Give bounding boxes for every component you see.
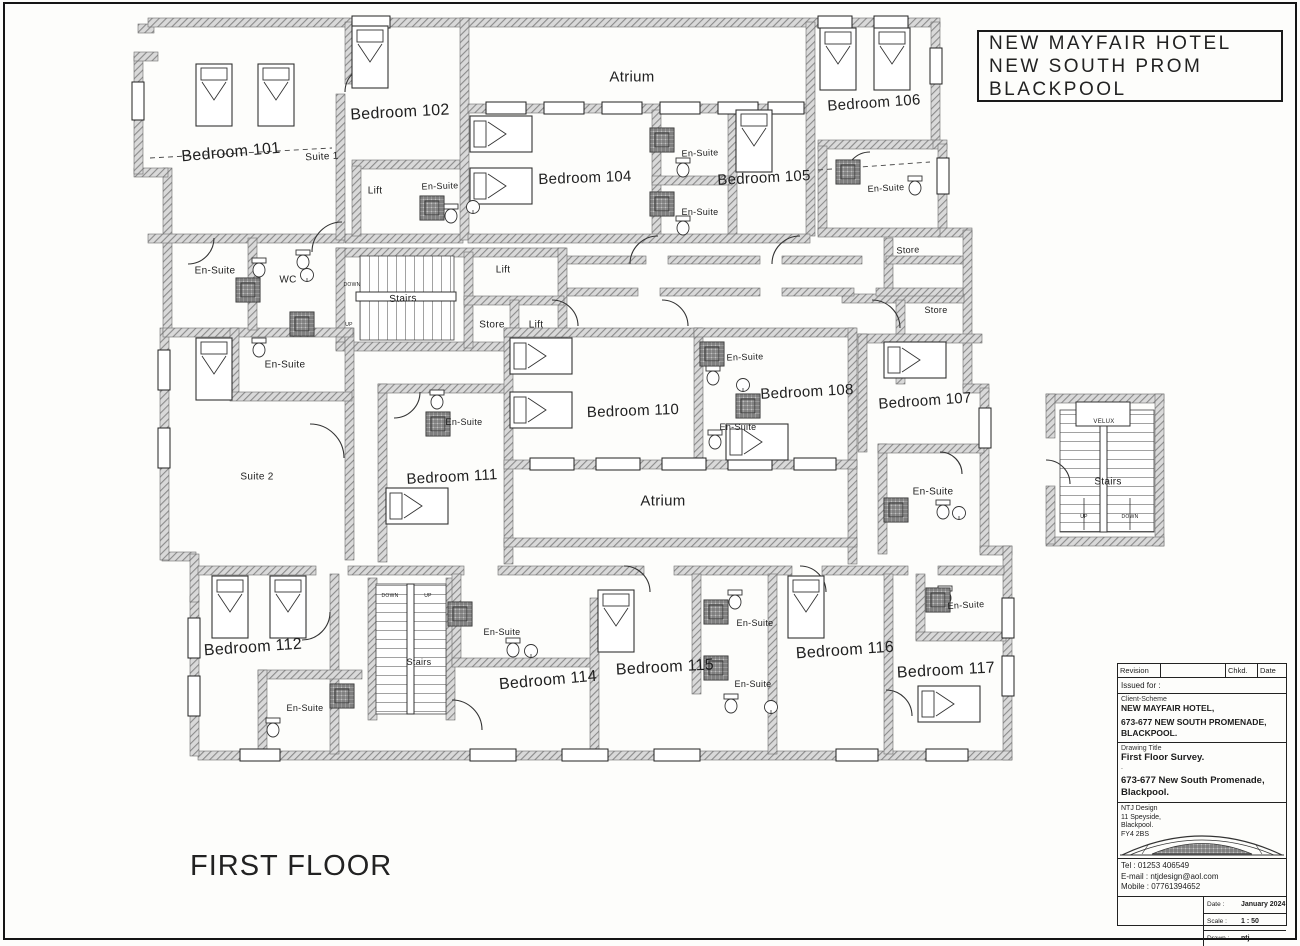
firm-line: Blackpool. (1121, 822, 1161, 831)
atrium-north-label: Atrium (609, 69, 654, 86)
atrium-center-label: Atrium (640, 493, 685, 510)
scale-value: 1 : 50 (1241, 918, 1259, 925)
tel: Tel : 01253 406549 (1121, 861, 1283, 872)
project-title-box: NEW MAYFAIR HOTEL NEW SOUTH PROM BLACKPO… (977, 30, 1283, 102)
contact-section: Tel : 01253 406549 E-mail : ntjdesign@ao… (1118, 859, 1286, 897)
ensuite-114-label: En-Suite (484, 627, 521, 637)
bedroom-101-label: Bedroom 101 (181, 140, 282, 167)
ensuite-104a-label: En-Suite (681, 147, 718, 158)
firm-line: FY4 2BS (1121, 831, 1161, 840)
stairs-left-down-label: DOWN (343, 282, 360, 288)
ensuite-108a-label: En-Suite (726, 351, 763, 362)
client-scheme-label: Client-Scheme (1121, 696, 1283, 703)
drawing-title-value: First Floor Survey. (1121, 752, 1283, 764)
drawn-field: Drawn : ntj (1204, 931, 1286, 946)
ensuite-left1-label: En-Suite (195, 266, 236, 277)
plan-labels-layer: AtriumBedroom 101Bedroom 102Suite 1LiftE… (0, 0, 1300, 946)
date-col-label: Date (1258, 664, 1286, 678)
ensuite-115b-label: En-Suite (735, 679, 772, 689)
bedroom-117-label: Bedroom 117 (897, 659, 996, 682)
project-title-line: NEW SOUTH PROM (989, 55, 1281, 78)
bedroom-105-label: Bedroom 105 (717, 167, 811, 189)
stairs-right-label: Stairs (1094, 477, 1121, 488)
suite-1-label: Suite 1 (305, 151, 339, 164)
bedroom-111-label: Bedroom 111 (406, 466, 498, 488)
bedroom-108-label: Bedroom 108 (760, 381, 854, 403)
stairs-right-up-label: UP (1080, 514, 1088, 520)
bedroom-110-label: Bedroom 110 (587, 401, 680, 421)
floor-plan-sheet: AtriumBedroom 101Bedroom 102Suite 1LiftE… (0, 0, 1300, 946)
wc-label: WC (279, 275, 296, 286)
store-3-label: Store (479, 320, 504, 331)
ensuite-106-label: En-Suite (867, 182, 904, 194)
bedroom-104-label: Bedroom 104 (538, 168, 632, 188)
chkd-label: Chkd. (1226, 664, 1258, 677)
project-title-line: NEW MAYFAIR HOTEL (989, 32, 1281, 55)
date-value: January 2024 (1241, 901, 1285, 908)
drawing-title-section: Drawing Title First Floor Survey. . 673-… (1118, 743, 1286, 803)
project-title-line: BLACKPOOL (989, 78, 1281, 101)
revision-label: Revision (1118, 664, 1161, 677)
lift-3-label: Lift (529, 320, 544, 331)
client-line: NEW MAYFAIR HOTEL, (1121, 703, 1283, 714)
bedroom-102-label: Bedroom 102 (350, 101, 450, 124)
stairs-bottom-label: Stairs (407, 657, 432, 667)
lift-1-label: Lift (368, 186, 383, 197)
ensuite-115a-label: En-Suite (737, 618, 774, 628)
mobile: Mobile : 07761394652 (1121, 882, 1283, 893)
ensuite-104b-label: En-Suite (682, 207, 719, 217)
address-line: Blackpool. (1121, 787, 1283, 799)
velux-label: VELUX (1093, 419, 1114, 425)
store-2-label: Store (924, 305, 947, 315)
client-scheme-section: Client-Scheme NEW MAYFAIR HOTEL, 673-677… (1118, 694, 1286, 743)
firm-line: NTJ Design (1121, 805, 1161, 814)
suite-2-label: Suite 2 (240, 472, 273, 483)
drawing-title-block: Revision Chkd. Date Issued for : Client-… (1117, 663, 1287, 926)
bedroom-106-label: Bedroom 106 (827, 91, 921, 114)
firm-section: NTJ Design 11 Speyside, Blackpool. FY4 2… (1118, 803, 1286, 859)
revision-value-cell (1161, 664, 1226, 677)
fields-section: Drawing No. A997/2 Date : January 2024 S… (1118, 897, 1286, 946)
firm-line: 11 Speyside, (1121, 814, 1161, 823)
address-line: 673-677 New South Promenade, (1121, 775, 1283, 787)
bedroom-116-label: Bedroom 116 (795, 639, 894, 664)
drawing-no-cell: Drawing No. A997/2 (1118, 897, 1203, 946)
client-line: 673-677 NEW SOUTH PROMENADE, (1121, 717, 1283, 728)
stairs-right-down-label: DOWN (1121, 514, 1138, 520)
lift-2-label: Lift (496, 265, 511, 276)
revision-row: Revision Chkd. Date (1118, 664, 1286, 678)
ensuite-111-label: En-Suite (446, 417, 483, 427)
stairs-bottom-down-label: DOWN (381, 593, 398, 599)
ensuite-117-label: En-Suite (947, 599, 984, 611)
ensuite-left2-label: En-Suite (265, 360, 306, 371)
ensuite-112-label: En-Suite (287, 703, 324, 713)
floor-title: FIRST FLOOR (190, 850, 392, 883)
spacer-dot: . (1121, 764, 1283, 771)
ensuite-108b-label: En-Suite (720, 422, 757, 432)
drawn-value: ntj (1241, 935, 1250, 942)
bedroom-107-label: Bedroom 107 (878, 389, 972, 412)
email: E-mail : ntjdesign@aol.com (1121, 872, 1283, 883)
bedroom-112-label: Bedroom 112 (203, 636, 302, 661)
issued-for-row: Issued for : (1118, 678, 1286, 694)
client-line: BLACKPOOL. (1121, 728, 1283, 739)
store-1-label: Store (896, 244, 920, 255)
ensuite-102-label: En-Suite (421, 180, 458, 191)
bedroom-114-label: Bedroom 114 (498, 668, 597, 694)
stairs-left-label: Stairs (389, 293, 417, 305)
date-field: Date : January 2024 (1204, 897, 1286, 914)
bedroom-115-label: Bedroom 115 (616, 656, 715, 679)
stairs-bottom-up-label: UP (424, 593, 432, 599)
ensuite-107-label: En-Suite (913, 487, 954, 498)
drawing-title-label: Drawing Title (1121, 745, 1283, 752)
stairs-left-up-label: UP (345, 322, 353, 328)
scale-field: Scale : 1 : 50 (1204, 914, 1286, 931)
